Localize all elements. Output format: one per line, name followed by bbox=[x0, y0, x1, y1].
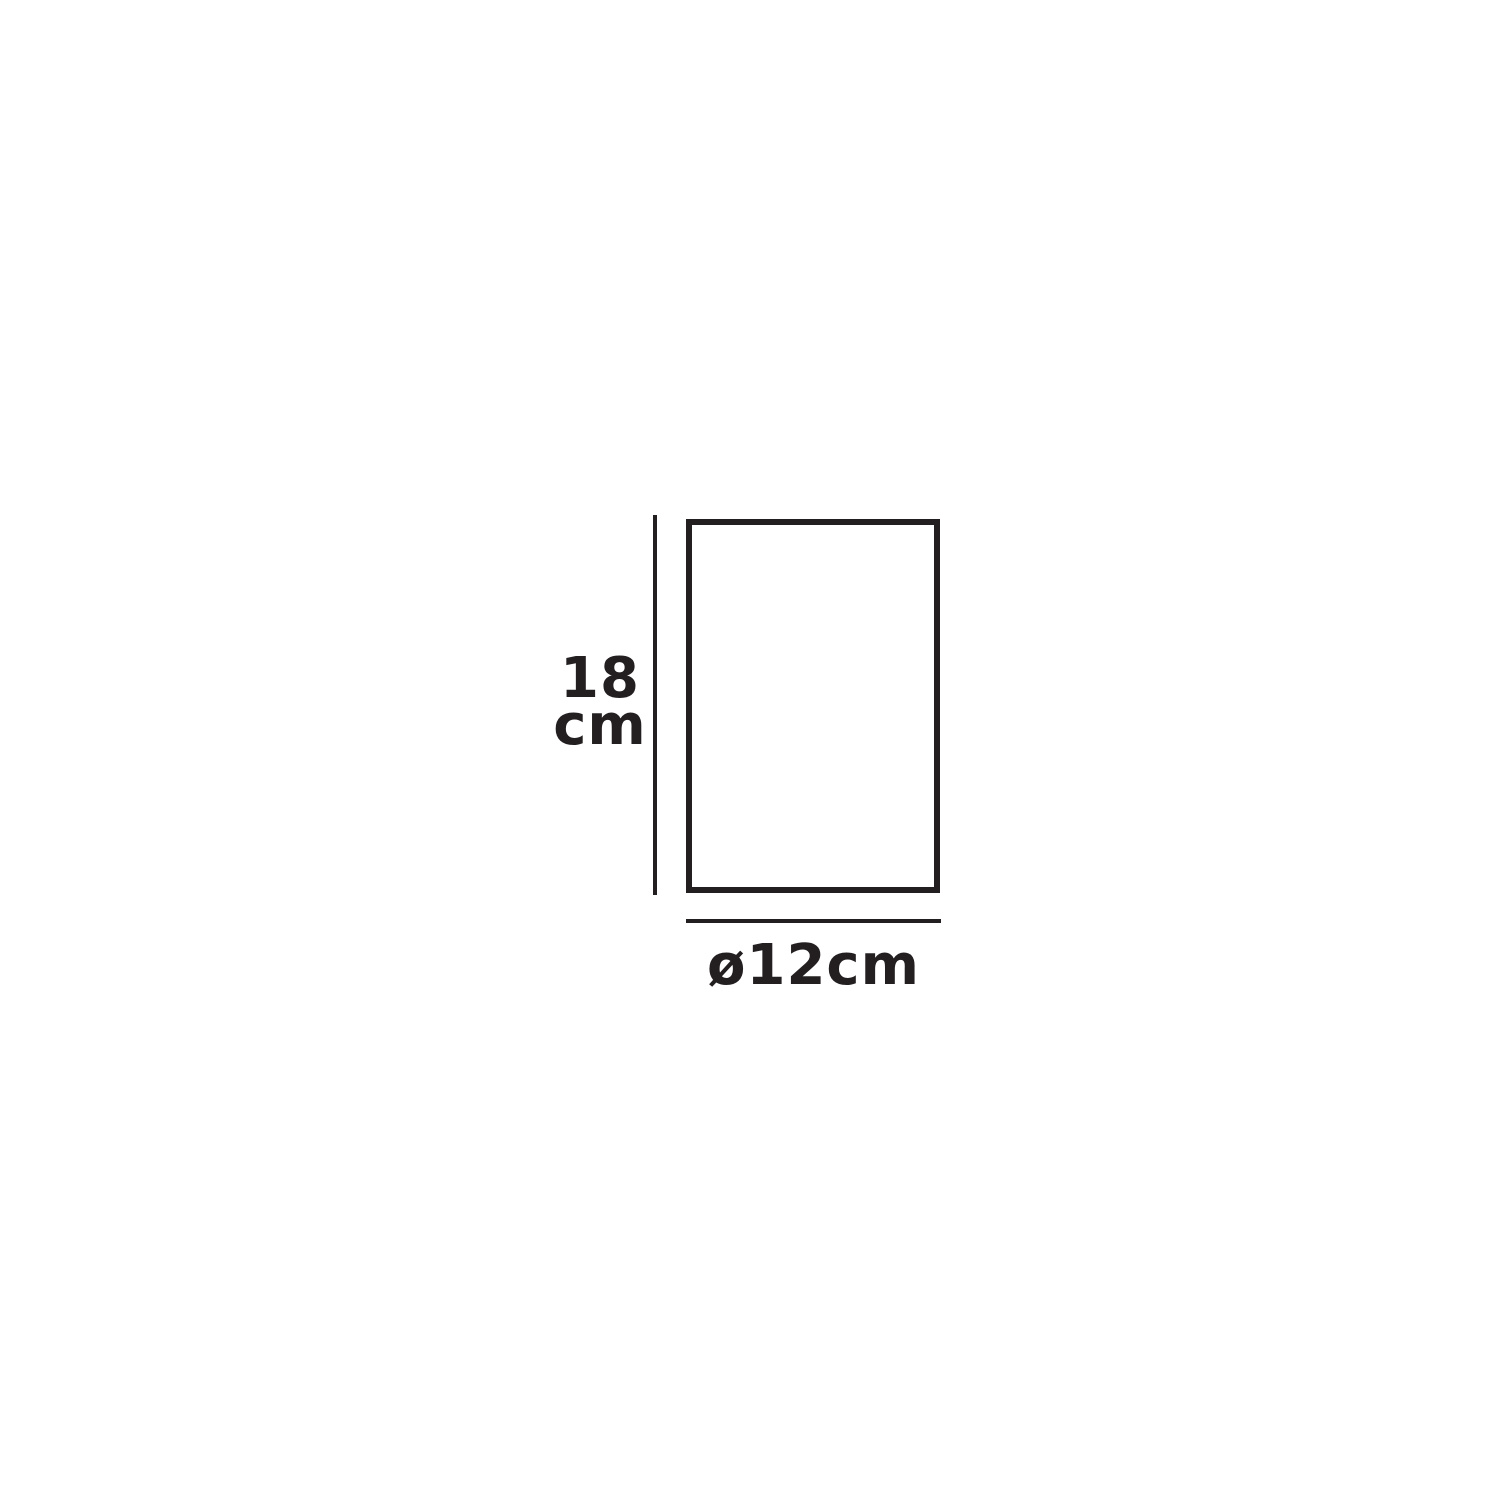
height-unit-text: cm bbox=[500, 702, 700, 749]
product-outline-rectangle bbox=[686, 519, 940, 893]
height-dimension-label: 18 cm bbox=[500, 655, 700, 749]
width-dimension-label: ø12cm bbox=[686, 936, 941, 996]
width-dimension-line bbox=[686, 919, 941, 923]
dimension-diagram: 18 cm ø12cm bbox=[0, 0, 1500, 1500]
